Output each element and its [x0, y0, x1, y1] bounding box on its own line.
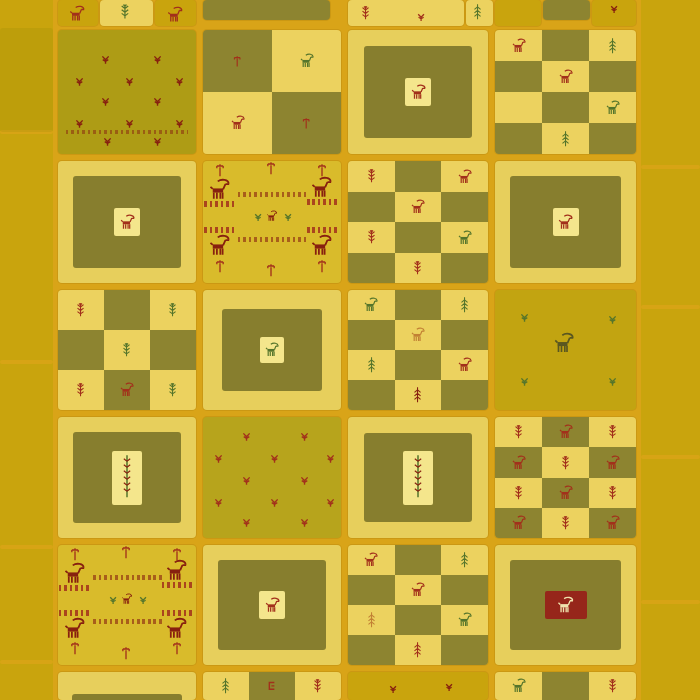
ibex-icon [61, 617, 88, 640]
checkerboard [203, 672, 341, 700]
checker-square [348, 290, 395, 320]
checkerboard [495, 30, 636, 154]
tree-icon [167, 381, 178, 399]
checker-square [589, 123, 636, 154]
sprig-icon [100, 54, 111, 65]
ibex-icon [206, 178, 233, 201]
checker-square [395, 605, 442, 635]
sprig-icon [269, 497, 280, 508]
ibex-icon [118, 382, 136, 397]
ibex-icon [308, 176, 335, 199]
sprig-icon [325, 453, 336, 464]
checker-square [395, 380, 442, 410]
checker-square [395, 320, 442, 350]
left-band [0, 0, 53, 700]
tree-icon [167, 301, 178, 319]
checker-square [395, 253, 442, 284]
checker-square [542, 417, 589, 447]
checker-square [395, 290, 442, 320]
ibex-icon [163, 559, 190, 582]
pole-icon [265, 263, 277, 278]
checkerboard [58, 290, 196, 410]
tree-icon [360, 4, 371, 22]
pole-icon [120, 646, 132, 661]
speckle-band [238, 237, 307, 242]
pole-icon [171, 641, 183, 656]
ibex-icon [557, 485, 575, 500]
center-box [553, 208, 579, 236]
band-seam [641, 600, 700, 604]
checker-square [495, 61, 542, 92]
pine-icon [459, 550, 470, 570]
sprig-icon [241, 475, 252, 486]
checker-square [441, 350, 488, 380]
checker-square [441, 192, 488, 223]
framed-inner-square [73, 432, 181, 523]
sprig-icon [108, 595, 118, 605]
rug-cell-r1-a [58, 30, 196, 154]
pole-icon [265, 161, 277, 176]
ibex-icon [308, 234, 335, 257]
sprig-icon [269, 453, 280, 464]
checker-square [542, 478, 589, 508]
rug-cell-r0-a2 [100, 0, 153, 26]
ibex-icon [263, 342, 281, 357]
pine-icon [412, 640, 423, 660]
center-box [114, 208, 140, 236]
ibex-icon [556, 214, 575, 230]
checker-square [542, 123, 589, 154]
checker-square [441, 320, 488, 350]
speckle-band [204, 201, 234, 207]
pine-icon [220, 676, 231, 696]
rug-cell-r0-d3 [592, 0, 636, 26]
tree-icon [607, 484, 618, 502]
checker-square [495, 417, 542, 447]
rug-cell-r5-d [495, 545, 636, 665]
hook-icon [266, 680, 278, 692]
checker-square [495, 92, 542, 123]
checker-square [441, 161, 488, 192]
pine-icon [607, 36, 618, 56]
band-seam [641, 305, 700, 309]
checker-square [58, 370, 104, 410]
rug-cell-r1-b [203, 30, 341, 154]
sprig-icon [416, 12, 426, 22]
speckle-band [59, 585, 89, 591]
rug-cell-r6-a [58, 672, 196, 700]
speckle-band [66, 130, 188, 134]
sprig-icon [74, 118, 85, 129]
checker-square [589, 447, 636, 477]
rug-cell-r0-c2 [466, 0, 493, 26]
sprig-icon [299, 431, 310, 442]
rug-cell-r5-b [203, 545, 341, 665]
pine-icon [366, 610, 377, 630]
checker-square [58, 290, 104, 330]
checker-square [395, 192, 442, 223]
checker-square [495, 447, 542, 477]
tree-icon [412, 259, 423, 277]
checker-square [58, 330, 104, 370]
band-seam [0, 360, 53, 364]
tree-icon [366, 167, 377, 185]
checker-square [395, 161, 442, 192]
checker-square [441, 290, 488, 320]
checker-square [348, 222, 395, 253]
speckle-band [93, 619, 162, 624]
sprig-icon [253, 212, 263, 222]
framed-inner-square [218, 560, 326, 650]
tree-icon [75, 381, 86, 399]
tree-icon [513, 423, 524, 441]
checker-square [272, 30, 341, 92]
ibex-icon [298, 53, 316, 68]
ibex-icon [118, 214, 137, 230]
tree-icon [560, 514, 571, 532]
ibex-icon [456, 169, 474, 184]
rug-cell-r0-d1 [495, 0, 541, 26]
ibex-icon [510, 455, 528, 470]
checker-square [542, 92, 589, 123]
rug-cell-r2-c [348, 161, 488, 283]
ibex-icon [362, 552, 380, 567]
checker-square [272, 92, 341, 154]
checker-square [441, 635, 488, 665]
sprig-icon [152, 54, 163, 65]
checker-square [348, 350, 395, 380]
tree-icon [121, 341, 132, 359]
ibex-icon [67, 5, 87, 22]
checker-square [104, 330, 150, 370]
checker-square [203, 30, 272, 92]
ibex-icon [456, 230, 474, 245]
checker-square [249, 672, 295, 700]
sprig-icon [241, 517, 252, 528]
checker-square [542, 672, 589, 700]
rug-photo [0, 0, 700, 700]
checker-square [589, 672, 636, 700]
ibex-icon [604, 515, 622, 530]
rug-cell-r3-b [203, 290, 341, 410]
ibex-icon [61, 562, 88, 585]
rug-cell-r5-a [58, 545, 196, 665]
checker-square [395, 350, 442, 380]
sprig-icon [519, 312, 530, 323]
rug-cell-r6-c [348, 672, 488, 700]
rug-cell-r2-a [58, 161, 196, 283]
speckle-band [162, 582, 192, 588]
framed-inner-square [364, 46, 472, 138]
checker-square [495, 123, 542, 154]
sprig-icon [102, 136, 113, 147]
band-seam [641, 455, 700, 459]
sprig-icon [174, 76, 185, 87]
tree-icon [607, 677, 618, 695]
checkerboard [495, 672, 636, 700]
checker-square [589, 30, 636, 61]
ibex-icon [120, 593, 134, 605]
sprig-icon [325, 497, 336, 508]
pine-icon [459, 295, 470, 315]
framed-inner-square [72, 694, 182, 700]
sprig-icon [444, 682, 454, 692]
treetall-icon [411, 452, 425, 502]
sprig-icon [388, 684, 398, 694]
sprig-icon [299, 517, 310, 528]
checker-square [589, 61, 636, 92]
ibex-icon [229, 115, 247, 130]
checker-square [150, 370, 196, 410]
ibex-icon [409, 199, 427, 214]
ibex-icon [206, 234, 233, 257]
ibex-icon [165, 6, 185, 23]
center-box [112, 451, 142, 505]
rug-cell-r2-b [203, 161, 341, 283]
sprig-icon [213, 453, 224, 464]
pine-icon [472, 2, 483, 22]
checkerboard [495, 417, 636, 538]
ibex-icon [409, 582, 427, 597]
ibex-icon [265, 210, 279, 222]
sprig-icon [607, 376, 618, 387]
band-seam [0, 545, 53, 549]
checker-square [348, 635, 395, 665]
ibex-icon [604, 100, 622, 115]
checker-square [495, 672, 542, 700]
ibex-icon [456, 357, 474, 372]
center-box [545, 591, 587, 619]
checker-square [395, 575, 442, 605]
sprig-icon [74, 76, 85, 87]
checker-square [542, 61, 589, 92]
sprig-icon [124, 76, 135, 87]
checker-square [348, 605, 395, 635]
checker-square [589, 417, 636, 447]
checker-square [441, 253, 488, 284]
checker-square [295, 672, 341, 700]
ibex-icon [456, 612, 474, 627]
rug-cell-r1-d [495, 30, 636, 154]
band-seam [641, 165, 700, 169]
framed-inner-square [222, 309, 322, 391]
right-band [641, 0, 700, 700]
ibex-icon [557, 69, 575, 84]
checker-square [542, 447, 589, 477]
ibex-icon [510, 515, 528, 530]
sprig-icon [283, 212, 293, 222]
rug-cell-r0-d2 [543, 0, 590, 20]
center-box [403, 451, 433, 505]
checker-square [542, 30, 589, 61]
band-tint [0, 28, 53, 132]
sprig-icon [152, 136, 163, 147]
checkerboard [348, 545, 488, 665]
speckle-band [238, 192, 307, 197]
ibex-icon [551, 332, 577, 354]
rug-cell-r2-d [495, 161, 636, 283]
pine-icon [412, 385, 423, 405]
rug-cell-r1-c [348, 30, 488, 154]
framed-inner-square [364, 433, 472, 522]
pole-icon [316, 259, 328, 274]
checker-square [348, 161, 395, 192]
pole-icon [120, 545, 132, 560]
checker-square [104, 370, 150, 410]
ibex-icon [510, 678, 528, 693]
rug-cell-r0-b [203, 0, 330, 20]
rug-cell-r3-a [58, 290, 196, 410]
rug-cell-r6-b [203, 672, 341, 700]
framed-inner-square [510, 560, 621, 650]
tree-icon [513, 484, 524, 502]
sprig-icon [519, 376, 530, 387]
pole-icon [232, 55, 242, 68]
checker-square [348, 320, 395, 350]
ibex-icon [557, 424, 575, 439]
checker-square [348, 380, 395, 410]
checker-square [589, 478, 636, 508]
ibex-icon [362, 297, 380, 312]
checker-square [441, 605, 488, 635]
tree-icon [366, 228, 377, 246]
framed-inner-square [73, 176, 181, 268]
center-box [259, 591, 285, 619]
sprig-icon [100, 96, 111, 107]
tree-icon [75, 301, 86, 319]
tree-icon [119, 2, 131, 21]
checkerboard [348, 161, 488, 283]
checker-square [150, 290, 196, 330]
rug-cell-r4-a [58, 417, 196, 538]
rug-cell-r3-c [348, 290, 488, 410]
pole-icon [69, 641, 81, 656]
pole-icon [69, 547, 81, 562]
pole-icon [214, 163, 226, 178]
rug-cell-r0-c [348, 0, 464, 26]
checker-square [441, 380, 488, 410]
tree-icon [312, 677, 323, 695]
sprig-icon [124, 118, 135, 129]
ibex-icon [409, 84, 428, 100]
speckle-band [93, 575, 162, 580]
band-seam [0, 660, 53, 664]
sprig-icon [138, 595, 148, 605]
tree-icon [607, 423, 618, 441]
rug-cell-r0-a1 [58, 0, 98, 26]
rug-cell-r5-c [348, 545, 488, 665]
tree-icon [560, 454, 571, 472]
center-box [260, 337, 284, 363]
rug-cell-r0-a3 [155, 0, 196, 26]
rug-cell-r4-b [203, 417, 341, 538]
pole-icon [301, 117, 311, 130]
rug-cell-r6-d [495, 672, 636, 700]
rug-cell-r4-c [348, 417, 488, 538]
sprig-icon [609, 4, 619, 14]
speckle-band [307, 199, 337, 205]
checker-square [495, 478, 542, 508]
checker-square [395, 545, 442, 575]
speckle-band [307, 227, 337, 233]
treetall-icon [120, 452, 134, 502]
checker-square [542, 508, 589, 538]
checker-square [104, 290, 150, 330]
ibex-icon [555, 596, 576, 614]
ibex-icon [163, 617, 190, 640]
checker-square [495, 30, 542, 61]
sprig-icon [213, 497, 224, 508]
ibex-icon [510, 38, 528, 53]
sprig-icon [174, 118, 185, 129]
checker-square [441, 222, 488, 253]
checker-square [441, 575, 488, 605]
checker-square [203, 672, 249, 700]
speckle-band [59, 610, 89, 616]
checkerboard [203, 30, 341, 154]
sprig-icon [241, 431, 252, 442]
rug-cell-r3-d [495, 290, 636, 410]
speckle-band [204, 227, 234, 233]
ibex-icon [263, 597, 282, 613]
speckle-band [162, 610, 192, 616]
ibex-icon [604, 455, 622, 470]
checker-square [150, 330, 196, 370]
sprig-icon [299, 475, 310, 486]
checkerboard [348, 290, 488, 410]
pole-icon [214, 259, 226, 274]
checker-square [348, 253, 395, 284]
ibex-icon [409, 327, 427, 342]
framed-inner-square [510, 176, 621, 268]
center-box [405, 78, 431, 106]
checker-square [348, 545, 395, 575]
checker-square [348, 575, 395, 605]
pine-icon [366, 355, 377, 375]
checker-square [495, 508, 542, 538]
checker-square [589, 508, 636, 538]
checker-square [395, 635, 442, 665]
sprig-icon [607, 314, 618, 325]
pine-icon [560, 129, 571, 149]
checker-square [395, 222, 442, 253]
rug-cell-r4-d [495, 417, 636, 538]
checker-square [441, 545, 488, 575]
checker-square [589, 92, 636, 123]
sprig-icon [152, 96, 163, 107]
checker-square [203, 92, 272, 154]
checker-square [348, 192, 395, 223]
